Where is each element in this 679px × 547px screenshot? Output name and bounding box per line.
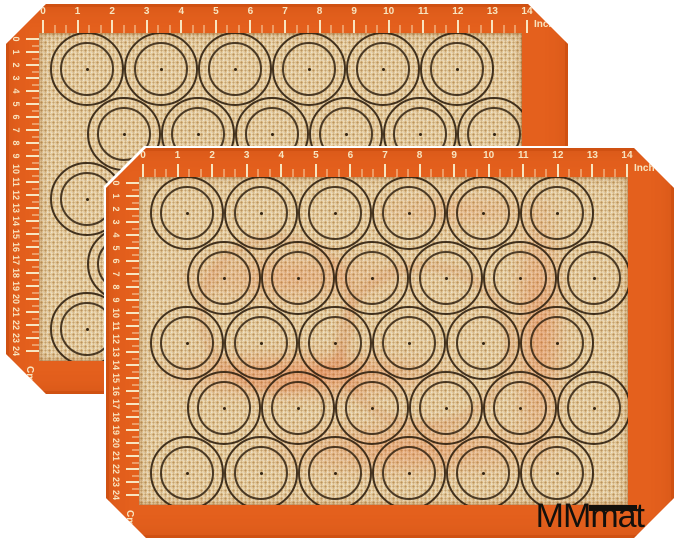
macaron-center-dot (371, 277, 374, 280)
macaron-center-dot (371, 407, 374, 410)
macaron-circle (298, 436, 372, 505)
cm-number: 6 (11, 114, 20, 119)
inch-tick-minor (396, 169, 397, 177)
inch-tick-major (388, 20, 390, 33)
macaron-circle (520, 436, 594, 505)
macaron-circle (335, 371, 409, 445)
cm-tick-major (126, 286, 139, 288)
cm-tick-major (126, 468, 139, 470)
inch-tick-major (419, 164, 421, 177)
cm-tick-major (126, 312, 139, 314)
cm-tick-minor (132, 462, 139, 463)
cm-number: 2 (11, 62, 20, 67)
macaron-center-dot (308, 68, 311, 71)
macaron-circle (224, 177, 298, 250)
macaron-center-dot (223, 277, 226, 280)
cm-ruler: 0123456789101112131415161718192021222324… (106, 148, 139, 538)
cm-number: 23 (111, 477, 120, 487)
macaron-circle (446, 306, 520, 380)
inch-tick-minor (511, 169, 512, 177)
macaron-circle (150, 177, 224, 250)
inch-number: 4 (278, 150, 284, 161)
cm-tick-minor (132, 397, 139, 398)
inch-tick-minor (331, 25, 332, 33)
cm-number: 21 (11, 307, 20, 317)
cm-tick-major (126, 260, 139, 262)
inch-tick-major (42, 20, 44, 33)
macaron-center-dot (197, 133, 200, 136)
cm-tick-minor (132, 475, 139, 476)
inch-tick-major (249, 20, 251, 33)
inch-number: 5 (313, 150, 319, 161)
inch-tick-minor (434, 25, 435, 33)
inch-number: 8 (317, 6, 323, 17)
inch-tick-minor (258, 169, 259, 177)
cm-tick-major (126, 195, 139, 197)
cm-unit-label: Cm (24, 366, 35, 382)
cm-number: 24 (11, 346, 20, 356)
cm-number: 16 (11, 242, 20, 252)
macaron-circle (150, 436, 224, 505)
cm-unit-label: Cm (124, 510, 135, 526)
cm-tick-minor (132, 332, 139, 333)
inch-tick-minor (100, 25, 101, 33)
cm-tick-minor (32, 253, 39, 254)
logo-ma: ma (590, 499, 635, 533)
cm-tick-minor (132, 241, 139, 242)
macaron-center-dot (334, 342, 337, 345)
inch-tick-minor (342, 25, 343, 33)
cm-tick-major (26, 129, 39, 131)
cm-number: 7 (111, 271, 120, 276)
inch-tick-minor (292, 169, 293, 177)
inch-number: 11 (418, 6, 429, 17)
cm-tick-minor (32, 97, 39, 98)
inch-tick-major (142, 164, 144, 177)
inch-number: 5 (213, 6, 219, 17)
inch-tick-minor (377, 25, 378, 33)
cm-tick-major (26, 116, 39, 118)
macaron-center-dot (445, 407, 448, 410)
cm-number: 14 (11, 216, 20, 226)
macaron-guide-circles (139, 177, 628, 505)
cm-tick-major (126, 429, 139, 431)
inch-tick-minor (204, 25, 205, 33)
inch-tick-minor (169, 25, 170, 33)
macaron-circle (335, 241, 409, 315)
cm-number: 2 (111, 206, 120, 211)
cm-tick-minor (32, 175, 39, 176)
macaron-circle (446, 436, 520, 505)
inch-number: 9 (451, 150, 457, 161)
inch-tick-major (522, 164, 524, 177)
cm-tick-minor (32, 149, 39, 150)
cm-number: 0 (11, 36, 20, 41)
baking-mat-front: 01234567891011121314Inch 012345678910111… (104, 146, 676, 540)
cm-tick-major (26, 311, 39, 313)
cm-number: 5 (111, 245, 120, 250)
inch-unit-label: Inch (634, 163, 655, 174)
cm-number: 16 (111, 386, 120, 396)
macaron-center-dot (345, 133, 348, 136)
macaron-center-dot (334, 472, 337, 475)
inch-tick-minor (580, 169, 581, 177)
macaron-circle (483, 371, 557, 445)
inch-tick-major (319, 20, 321, 33)
inch-number: 14 (521, 6, 532, 17)
cm-tick-minor (132, 293, 139, 294)
cm-tick-major (26, 77, 39, 79)
macaron-circle (520, 306, 594, 380)
inch-number: 1 (75, 6, 81, 17)
cm-tick-minor (32, 162, 39, 163)
inch-tick-minor (534, 169, 535, 177)
inch-number: 0 (40, 6, 46, 17)
macaron-center-dot (593, 407, 596, 410)
macaron-center-dot (297, 277, 300, 280)
macaron-center-dot (408, 342, 411, 345)
cm-number: 0 (111, 180, 120, 185)
inch-tick-minor (373, 169, 374, 177)
cm-tick-major (26, 285, 39, 287)
fiberglass-mesh (139, 177, 628, 505)
macaron-circle (150, 306, 224, 380)
cm-tick-minor (132, 202, 139, 203)
cm-tick-minor (32, 305, 39, 306)
cm-tick-major (126, 351, 139, 353)
cm-number: 1 (11, 49, 20, 54)
cm-tick-major (26, 324, 39, 326)
cm-number: 24 (111, 490, 120, 500)
cm-tick-major (26, 298, 39, 300)
cm-number: 20 (111, 438, 120, 448)
inch-tick-minor (304, 169, 305, 177)
cm-tick-major (126, 273, 139, 275)
cm-tick-minor (32, 344, 39, 345)
inch-tick-major (457, 20, 459, 33)
product-image-stage: 01234567891011121314Inch 012345678910111… (0, 0, 679, 547)
inch-tick-major (491, 20, 493, 33)
cm-tick-minor (132, 436, 139, 437)
inch-tick-minor (89, 25, 90, 33)
inch-tick-major (111, 20, 113, 33)
inch-tick-major (146, 20, 148, 33)
cm-tick-minor (132, 345, 139, 346)
inch-tick-major (211, 164, 213, 177)
cm-number: 12 (111, 334, 120, 344)
inch-tick-major (177, 164, 179, 177)
cm-tick-major (126, 481, 139, 483)
inch-number: 14 (621, 150, 632, 161)
macaron-circle (298, 306, 372, 380)
cm-tick-minor (32, 136, 39, 137)
cm-number: 19 (111, 425, 120, 435)
inch-tick-minor (238, 25, 239, 33)
cm-tick-major (126, 182, 139, 184)
macaron-center-dot (86, 198, 89, 201)
inch-number: 1 (175, 150, 181, 161)
inch-tick-minor (235, 169, 236, 177)
cm-tick-minor (132, 267, 139, 268)
macaron-center-dot (593, 277, 596, 280)
macaron-circle (198, 33, 272, 106)
logo-overline (589, 505, 636, 511)
cm-tick-major (26, 194, 39, 196)
cm-tick-minor (32, 123, 39, 124)
cm-tick-minor (32, 240, 39, 241)
macaron-center-dot (419, 133, 422, 136)
cm-number: 11 (111, 321, 120, 331)
cm-number: 4 (11, 88, 20, 93)
inch-tick-minor (135, 25, 136, 33)
cm-tick-minor (32, 292, 39, 293)
cm-tick-major (26, 207, 39, 209)
cm-tick-minor (32, 318, 39, 319)
macaron-circle (420, 33, 494, 106)
inch-tick-minor (269, 169, 270, 177)
cm-tick-minor (132, 215, 139, 216)
macaron-center-dot (260, 212, 263, 215)
inch-tick-major (626, 164, 628, 177)
inch-tick-major (526, 20, 528, 33)
inch-tick-minor (166, 169, 167, 177)
cm-tick-major (126, 338, 139, 340)
inch-tick-minor (296, 25, 297, 33)
inch-number: 3 (244, 150, 250, 161)
macaron-circle (372, 436, 446, 505)
cm-number: 15 (111, 373, 120, 383)
macaron-center-dot (260, 342, 263, 345)
cm-tick-major (26, 155, 39, 157)
inch-tick-minor (200, 169, 201, 177)
macaron-circle (298, 177, 372, 250)
inch-number: 2 (209, 150, 215, 161)
cm-tick-major (26, 64, 39, 66)
macaron-center-dot (186, 212, 189, 215)
macaron-center-dot (408, 212, 411, 215)
macaron-circle (124, 33, 198, 106)
cm-number: 3 (111, 219, 120, 224)
inch-number: 2 (109, 6, 115, 17)
cm-number: 8 (111, 284, 120, 289)
inch-tick-minor (480, 25, 481, 33)
inch-tick-major (77, 20, 79, 33)
inch-ruler: 01234567891011121314Inch (106, 148, 674, 177)
macaron-circle (557, 241, 628, 315)
macaron-center-dot (556, 472, 559, 475)
cm-number: 22 (11, 320, 20, 330)
inch-tick-minor (192, 25, 193, 33)
macaron-circle (409, 241, 483, 315)
cm-tick-minor (32, 110, 39, 111)
cm-tick-major (126, 364, 139, 366)
cm-tick-major (26, 142, 39, 144)
cm-tick-major (126, 221, 139, 223)
cm-tick-major (126, 442, 139, 444)
macaron-center-dot (86, 328, 89, 331)
cm-tick-minor (132, 449, 139, 450)
inch-number: 10 (383, 6, 394, 17)
cm-number: 13 (111, 347, 120, 357)
inch-tick-minor (408, 169, 409, 177)
cm-tick-minor (132, 254, 139, 255)
cm-tick-major (26, 337, 39, 339)
logo-t: t (636, 499, 644, 533)
macaron-circle (187, 241, 261, 315)
macaron-circle (261, 241, 335, 315)
cm-number: 17 (111, 399, 120, 409)
inch-tick-minor (569, 169, 570, 177)
macaron-center-dot (493, 133, 496, 136)
macaron-center-dot (408, 472, 411, 475)
cm-tick-major (26, 103, 39, 105)
cm-tick-major (126, 494, 139, 496)
macaron-center-dot (186, 472, 189, 475)
macaron-center-dot (456, 68, 459, 71)
cm-ruler: 0123456789101112131415161718192021222324… (6, 4, 39, 394)
cm-tick-major (126, 208, 139, 210)
cm-tick-minor (32, 71, 39, 72)
cm-tick-major (26, 51, 39, 53)
inch-tick-minor (465, 169, 466, 177)
cm-number: 3 (11, 75, 20, 80)
inch-tick-minor (503, 25, 504, 33)
macaron-circle (346, 33, 420, 106)
cm-tick-minor (132, 410, 139, 411)
macaron-circle (520, 177, 594, 250)
inch-tick-major (280, 164, 282, 177)
inch-tick-major (453, 164, 455, 177)
inch-number: 13 (587, 150, 598, 161)
cm-tick-major (126, 416, 139, 418)
cm-tick-major (26, 38, 39, 40)
inch-number: 7 (282, 6, 288, 17)
cm-tick-minor (32, 266, 39, 267)
inch-number: 6 (348, 150, 354, 161)
macaron-center-dot (86, 68, 89, 71)
cm-tick-major (126, 377, 139, 379)
macaron-circle (224, 436, 298, 505)
cm-tick-minor (32, 188, 39, 189)
inch-tick-minor (158, 25, 159, 33)
cm-number: 8 (11, 140, 20, 145)
macaron-center-dot (519, 407, 522, 410)
inch-tick-minor (54, 25, 55, 33)
inch-tick-major (180, 20, 182, 33)
inch-tick-minor (500, 169, 501, 177)
cm-tick-major (26, 350, 39, 352)
cm-number: 5 (11, 101, 20, 106)
macaron-circle (483, 241, 557, 315)
inch-number: 0 (140, 150, 146, 161)
macaron-center-dot (482, 342, 485, 345)
macaron-circle (261, 371, 335, 445)
cm-number: 1 (111, 193, 120, 198)
inch-tick-minor (446, 25, 447, 33)
inch-tick-minor (546, 169, 547, 177)
cm-tick-major (26, 90, 39, 92)
inch-tick-major (246, 164, 248, 177)
cm-tick-major (26, 259, 39, 261)
inch-tick-major (557, 164, 559, 177)
inch-number: 12 (552, 150, 563, 161)
cm-number: 21 (111, 451, 120, 461)
cm-tick-minor (132, 488, 139, 489)
cm-tick-minor (132, 280, 139, 281)
cm-tick-major (26, 246, 39, 248)
inch-tick-minor (123, 25, 124, 33)
cm-tick-minor (132, 423, 139, 424)
macaron-center-dot (123, 133, 126, 136)
inch-number: 8 (417, 150, 423, 161)
cm-number: 23 (11, 333, 20, 343)
cm-tick-minor (132, 228, 139, 229)
cm-number: 11 (11, 177, 20, 187)
inch-tick-minor (469, 25, 470, 33)
cm-tick-major (26, 272, 39, 274)
cm-tick-minor (32, 331, 39, 332)
macaron-center-dot (334, 212, 337, 215)
macaron-circle (372, 306, 446, 380)
cm-tick-minor (132, 319, 139, 320)
inch-tick-minor (308, 25, 309, 33)
macaron-center-dot (260, 472, 263, 475)
cm-number: 13 (11, 203, 20, 213)
inch-number: 9 (351, 6, 357, 17)
inch-tick-major (315, 164, 317, 177)
inch-tick-minor (327, 169, 328, 177)
cm-number: 7 (11, 127, 20, 132)
inch-tick-minor (515, 25, 516, 33)
inch-tick-major (215, 20, 217, 33)
cm-number: 12 (11, 190, 20, 200)
cm-number: 15 (11, 229, 20, 239)
inch-tick-major (488, 164, 490, 177)
cm-number: 18 (11, 268, 20, 278)
inch-tick-minor (227, 25, 228, 33)
macaron-center-dot (382, 68, 385, 71)
cm-tick-major (126, 234, 139, 236)
cm-tick-minor (132, 384, 139, 385)
macaron-circle (409, 371, 483, 445)
inch-tick-minor (477, 169, 478, 177)
cm-tick-minor (32, 279, 39, 280)
inch-tick-major (284, 20, 286, 33)
cm-number: 19 (11, 281, 20, 291)
inch-tick-minor (603, 169, 604, 177)
cm-tick-minor (132, 189, 139, 190)
inch-number: 7 (382, 150, 388, 161)
inch-tick-minor (365, 25, 366, 33)
cm-number: 10 (111, 308, 120, 318)
cm-number: 17 (11, 255, 20, 265)
inch-tick-minor (338, 169, 339, 177)
macaron-circle (272, 33, 346, 106)
brand-logo: MMmat (536, 499, 644, 533)
inch-number: 3 (144, 6, 150, 17)
inch-tick-minor (442, 169, 443, 177)
macaron-circle (187, 371, 261, 445)
macaron-circle (50, 33, 124, 106)
cm-tick-minor (132, 358, 139, 359)
baking-mat-front-body: 01234567891011121314Inch 012345678910111… (106, 148, 674, 538)
inch-tick-minor (66, 25, 67, 33)
cm-tick-minor (132, 371, 139, 372)
inch-ruler: 01234567891011121314Inch (6, 4, 568, 33)
inch-tick-major (384, 164, 386, 177)
macaron-center-dot (223, 407, 226, 410)
inch-tick-minor (223, 169, 224, 177)
